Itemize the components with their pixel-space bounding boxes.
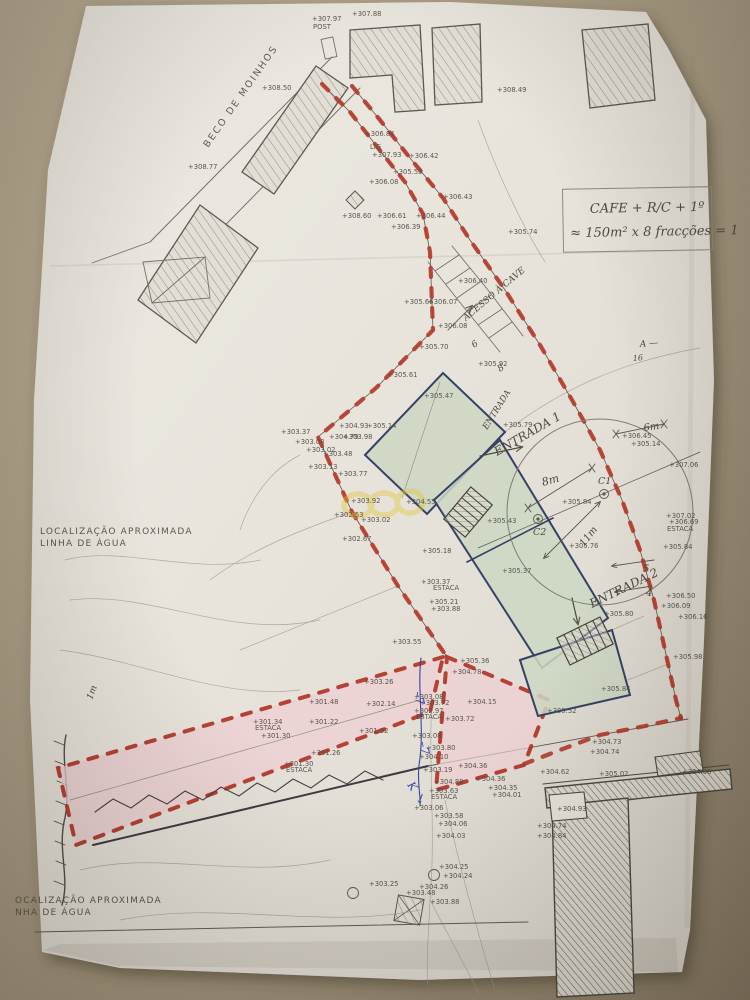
water-line-label-bottom-1: OCALIZAÇÃO APROXIMADA (15, 895, 162, 906)
survey-point-label: +306.07 (428, 298, 457, 306)
survey-point-label: +301.30 (261, 732, 290, 740)
survey-point-label: +306.40 (458, 277, 487, 285)
survey-point-label: +303.13 (308, 463, 337, 471)
survey-point-label: +305.18 (422, 547, 451, 555)
handwritten-note: –7 (416, 740, 432, 756)
survey-point-label: +304.36 (476, 775, 505, 783)
survey-point-label: +308.60 (342, 212, 371, 220)
survey-point-label: +306.61 (377, 212, 406, 220)
handwritten-note: 6m (643, 421, 660, 434)
survey-point-label: +305.02 (599, 770, 628, 778)
survey-point-label: +306.08 (369, 178, 398, 186)
survey-point-label: +306.44 (416, 212, 445, 220)
survey-point-label: +304.55 (406, 498, 435, 506)
handwritten-note: –7 (411, 690, 427, 706)
survey-point-label: +305.84 (601, 685, 630, 693)
survey-point-label: +308.77 (188, 163, 217, 171)
survey-point-label: +303.37 (281, 428, 310, 436)
survey-point-label: +303.98 (343, 433, 372, 441)
survey-point-label: +301.48 (309, 698, 338, 706)
survey-point-label: +304.93 (557, 805, 586, 813)
survey-point-label: +301.92 (359, 727, 388, 735)
survey-point-label: +303.08 (295, 438, 324, 446)
survey-point-label: +303.48 (406, 889, 435, 897)
survey-point-label: +308.50 (262, 84, 291, 92)
survey-point-label: +304.15 (467, 698, 496, 706)
survey-point-label: +305.47 (424, 392, 453, 400)
survey-point-label: ESTACA (431, 793, 458, 801)
survey-point-label: ESTACA (255, 724, 282, 732)
survey-point-label: +305.61 (388, 371, 417, 379)
survey-point-label: +306.42 (409, 152, 438, 160)
survey-point-label: +305.36 (460, 657, 489, 665)
water-line-label-top-2: LINHA DE ÁGUA (40, 537, 127, 549)
survey-point-label: +306.84 (365, 130, 394, 138)
survey-point-label: LIG (370, 143, 381, 151)
survey-point-label: +304.73 (592, 738, 621, 746)
survey-point-label: +301.26 (311, 749, 340, 757)
survey-point-label: +307.06 (669, 461, 698, 469)
survey-point-label: +305.80 (604, 610, 633, 618)
survey-point-label: +306.43 (443, 193, 472, 201)
survey-point-label: ESTACA (433, 584, 460, 592)
survey-point-label: +303.58 (434, 812, 463, 820)
survey-point-label: +304.24 (443, 872, 472, 880)
building-hatched (432, 24, 482, 105)
survey-point-label: +304.06 (438, 820, 467, 828)
survey-point-label: +308.49 (497, 86, 526, 94)
survey-point-label: +307.93 (372, 151, 401, 159)
survey-point-label: +303.55 (392, 638, 421, 646)
handwritten-note: 5 (643, 564, 649, 575)
survey-point-label: +305.52 (547, 707, 576, 715)
survey-point-label: +302.67 (342, 535, 371, 543)
site-plan-svg: BECO DE MOINHOS LOCALIZAÇÃO APROXIMADA L… (0, 0, 750, 1000)
survey-point-label: +302.53 (334, 511, 363, 519)
survey-point-label: +306.50 (666, 592, 695, 600)
survey-point-label: +304.36 (458, 762, 487, 770)
survey-point-label: +303.48 (323, 450, 352, 458)
survey-point-label: +305.84 (562, 498, 591, 506)
survey-point-label: +306.09 (661, 602, 690, 610)
handwritten-note: A — (638, 338, 658, 350)
survey-point-label: +305.70 (419, 343, 448, 351)
survey-point-label: +305.53 (393, 168, 422, 176)
survey-point-label: +301.22 (309, 718, 338, 726)
handwritten-note: C2 (533, 527, 546, 538)
survey-point-label: +305.14 (631, 440, 660, 448)
photo-of-site-plan: BECO DE MOINHOS LOCALIZAÇÃO APROXIMADA L… (0, 0, 750, 1000)
water-line-label-top-1: LOCALIZAÇÃO APROXIMADA (40, 526, 193, 537)
survey-point-label: ESTACA (416, 713, 443, 721)
survey-point-label: +307.97 (312, 15, 341, 23)
survey-point-label: +304.62 (540, 768, 569, 776)
survey-point-label: ESTACA (286, 766, 313, 774)
survey-point-label: +303.92 (351, 497, 380, 505)
survey-point-label: +304.74 (590, 748, 619, 756)
survey-point-label: +306.16 (678, 613, 707, 621)
handwritten-note: 16 (632, 353, 643, 363)
survey-point-label: +303.02 (361, 516, 390, 524)
handwritten-note: 4 (645, 588, 652, 599)
survey-point-label: +303.88 (431, 605, 460, 613)
survey-point-label: +302.14 (366, 700, 395, 708)
survey-point-label: +305.14 (367, 422, 396, 430)
survey-point-label: +305.98 (673, 653, 702, 661)
water-line-label-bottom-2: NHA DE ÁGUA (15, 906, 92, 918)
survey-point-label: +303.77 (338, 470, 367, 478)
survey-point-label: +304.78 (452, 668, 481, 676)
survey-point-label: +304.03 (436, 832, 465, 840)
cafe-note-line1: CAFE + R/C + 1º (590, 200, 705, 217)
survey-point-label: +303.26 (364, 678, 393, 686)
survey-point-label: +306.39 (391, 223, 420, 231)
survey-point-label: +305.74 (508, 228, 537, 236)
cafe-note-line2: ≈ 150m² x 8 fracções = 1 (570, 223, 739, 241)
handwritten-note: C1 (598, 476, 611, 487)
survey-point-label: ESTACA (667, 525, 694, 533)
survey-point-label: +304.01 (492, 791, 521, 799)
survey-point-label: +304.88 (434, 778, 463, 786)
survey-point-label: +303.72 (445, 715, 474, 723)
survey-point-label: +303.08 (412, 732, 441, 740)
survey-point-label: +305.37 (502, 567, 531, 575)
survey-point-label: +305.43 (487, 517, 516, 525)
survey-point-label: +304.74 (537, 822, 566, 830)
survey-point-label: +307.88 (352, 10, 381, 18)
survey-point-label: +304.93 (339, 422, 368, 430)
survey-point-label: +303.25 (369, 880, 398, 888)
survey-point-label: +303.88 (430, 898, 459, 906)
building-hatched (582, 24, 655, 108)
survey-point-label: +306.08 (438, 322, 467, 330)
survey-point-label: +304.25 (439, 863, 468, 871)
survey-point-label: +304.84 (537, 832, 566, 840)
survey-point-label: POST (313, 23, 332, 31)
survey-point-label: +303.19 (423, 766, 452, 774)
survey-point-label: +305.84 (663, 543, 692, 551)
survey-point-label: +304.08 (682, 768, 711, 776)
